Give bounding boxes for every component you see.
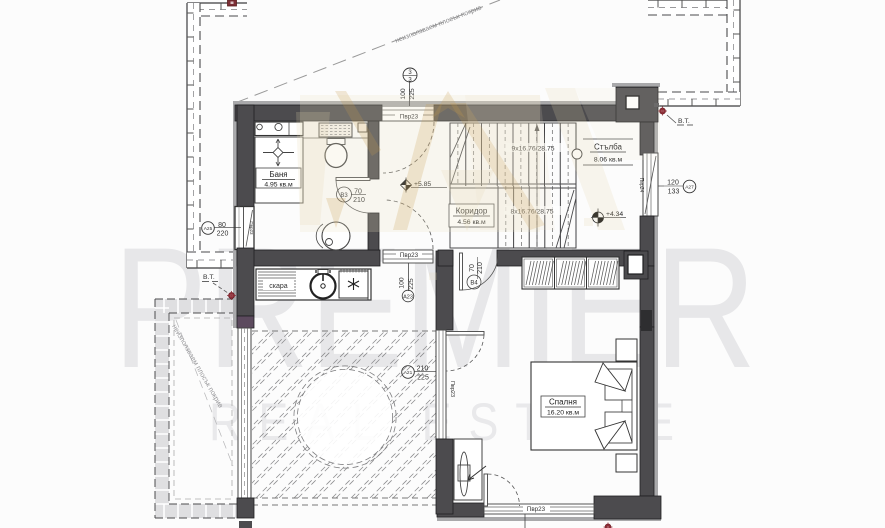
svg-text:Баня: Баня bbox=[270, 170, 288, 179]
svg-text:210: 210 bbox=[477, 262, 484, 274]
svg-text:70: 70 bbox=[469, 264, 476, 272]
svg-text:В4: В4 bbox=[470, 281, 478, 287]
svg-text:120: 120 bbox=[667, 180, 679, 187]
svg-text:А23: А23 bbox=[403, 295, 413, 301]
svg-text:4.95 кв.м: 4.95 кв.м bbox=[264, 182, 293, 189]
svg-text:16.20 кв.м: 16.20 кв.м bbox=[547, 410, 579, 417]
svg-text:В.Т.: В.Т. bbox=[203, 274, 215, 281]
svg-text:Пвр23: Пвр23 bbox=[449, 381, 455, 397]
svg-text:А25: А25 bbox=[204, 226, 213, 232]
svg-text:133: 133 bbox=[668, 189, 680, 196]
svg-text:Спалня: Спалня bbox=[549, 398, 577, 407]
svg-text:100: 100 bbox=[399, 277, 406, 289]
svg-text:скара: скара bbox=[269, 283, 288, 290]
svg-text:Пвр24: Пвр24 bbox=[638, 178, 644, 193]
svg-text:А21: А21 bbox=[404, 370, 413, 376]
svg-text:Пвр23: Пвр23 bbox=[527, 506, 546, 513]
svg-text:Пвр23: Пвр23 bbox=[400, 252, 419, 259]
svg-text:225: 225 bbox=[417, 375, 429, 382]
svg-text:А27: А27 bbox=[685, 185, 694, 191]
svg-text:Пвр23: Пвр23 bbox=[249, 221, 254, 235]
svg-text:В.Т.: В.Т. bbox=[678, 118, 690, 125]
svg-text:225: 225 bbox=[408, 278, 415, 290]
svg-text:220: 220 bbox=[217, 231, 229, 238]
